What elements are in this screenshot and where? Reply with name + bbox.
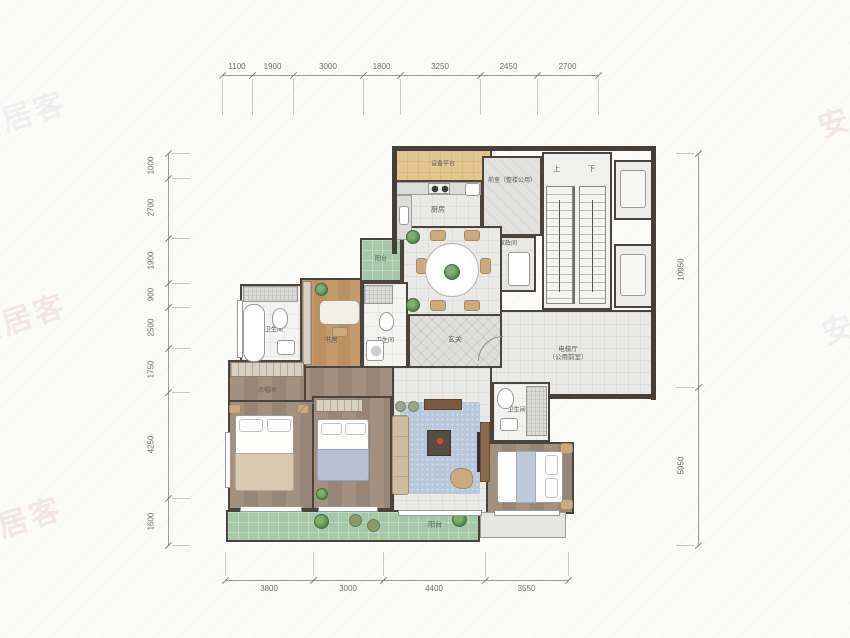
plant — [444, 264, 460, 280]
wall-segment — [394, 146, 656, 151]
dimension-label: 900 — [147, 278, 156, 312]
elevator-car — [620, 170, 646, 208]
dimension-extension — [172, 283, 190, 284]
pillow — [267, 419, 291, 432]
plant — [406, 230, 420, 244]
tv-console — [480, 422, 490, 482]
room-front-room: 前室（整楼公用） — [482, 156, 542, 236]
stair-arrow — [592, 200, 593, 292]
dimension-extension — [172, 153, 190, 154]
dimension-extension — [252, 79, 253, 115]
dimension-extension — [172, 545, 190, 546]
stair-down-label: 下 — [588, 166, 595, 175]
wardrobe-hatch — [315, 399, 363, 412]
dimension-label: 1900 — [256, 62, 290, 71]
elevator-car — [620, 254, 646, 296]
bed-blanket — [235, 453, 294, 491]
plant — [314, 514, 329, 529]
dimension-label: 1900 — [147, 243, 156, 277]
elevator-hall-line2: （公用前室） — [549, 354, 588, 361]
wall-segment — [548, 394, 654, 399]
dimension-label: 1100 — [220, 62, 254, 71]
dimension-label: 3800 — [252, 584, 286, 593]
bathroom-sink — [500, 418, 518, 431]
room-elevator-hall-label: 电梯厅 （公用前室） — [549, 346, 588, 362]
room-equipment-platform: 设备平台 — [394, 148, 492, 182]
dining-chair — [480, 258, 491, 274]
pillow — [545, 478, 558, 498]
dimension-label: 5950 — [677, 449, 686, 483]
stair-up-label: 上 — [553, 166, 560, 175]
window — [494, 510, 560, 516]
utility-sink — [508, 252, 530, 286]
dimension-label: 2500 — [147, 310, 156, 344]
dimension-label: 1750 — [147, 353, 156, 387]
dimension-label: 4400 — [417, 584, 451, 593]
dining-chair — [464, 230, 480, 241]
dimension-extension — [225, 552, 226, 576]
dimension-extension — [480, 79, 481, 115]
stair-divider — [573, 186, 575, 304]
sideboard — [424, 399, 462, 410]
dimension-label: 1000 — [147, 148, 156, 182]
window — [237, 300, 243, 358]
room-equipment-platform-label: 设备平台 — [431, 161, 455, 169]
room-balcony-label: 阳台 — [428, 522, 442, 531]
wall-segment — [651, 146, 656, 400]
watermark: 安居客 — [816, 281, 850, 353]
room-bath-3-label: 卫生间 — [508, 407, 526, 415]
toilet — [497, 388, 514, 409]
dimension-extension — [400, 79, 401, 115]
elevator-hall-line1: 电梯厅 — [558, 346, 578, 353]
pillow — [345, 423, 366, 435]
bed-blanket — [516, 451, 536, 503]
window — [318, 506, 378, 512]
dimension-extension — [568, 552, 569, 576]
dining-chair — [464, 300, 480, 311]
watermark: 安居客 — [0, 281, 71, 353]
dimension-label: 2700 — [147, 191, 156, 225]
dimension-line — [222, 75, 598, 76]
dimension-extension — [172, 392, 190, 393]
dimension-extension — [172, 238, 190, 239]
wardrobe-hatch — [230, 362, 304, 377]
dimension-extension — [383, 552, 384, 576]
plant — [316, 488, 328, 500]
washer — [366, 340, 384, 361]
dimension-label: 10050 — [677, 253, 686, 287]
watermark: 安居客 — [812, 74, 850, 146]
desk — [319, 300, 360, 325]
dimension-extension — [222, 79, 223, 115]
shower-floor — [243, 286, 298, 302]
pillow — [545, 455, 558, 475]
dimension-extension — [313, 552, 314, 576]
dimension-extension — [598, 79, 599, 115]
floorplan-page: 安居客 安居客 安居客 安居客 安居客 设备平台 厨房 前室（整楼公用） 家政间… — [0, 0, 850, 638]
room-front-room-label: 前室（整楼公用） — [488, 178, 536, 186]
shower-floor — [364, 285, 393, 304]
dimension-label: 4250 — [147, 428, 156, 462]
window — [398, 510, 482, 516]
pillow — [239, 419, 263, 432]
room-study-label: 书房 — [324, 337, 338, 346]
dimension-extension — [172, 178, 190, 179]
bathtub — [243, 304, 265, 362]
stool — [395, 401, 406, 412]
dimension-extension — [172, 348, 190, 349]
dimension-label: 1600 — [147, 504, 156, 538]
dimension-label: 3250 — [423, 62, 457, 71]
armchair — [450, 468, 473, 489]
dimension-extension — [363, 79, 364, 115]
shower-floor — [526, 386, 547, 436]
room-foyer-label: 玄关 — [448, 337, 462, 346]
stair-arrow — [559, 200, 560, 292]
dimension-label: 3000 — [311, 62, 345, 71]
room-cloakroom-label: 衣帽间 — [258, 388, 276, 396]
dimension-label: 2700 — [551, 62, 585, 71]
sofa — [392, 415, 409, 495]
toilet — [272, 308, 288, 329]
room-kitchen-label: 厨房 — [431, 206, 445, 215]
dimension-extension — [676, 153, 694, 154]
dimension-extension — [293, 79, 294, 115]
plant — [315, 283, 328, 296]
dimension-label: 3000 — [331, 584, 365, 593]
dining-chair — [430, 300, 446, 311]
window — [240, 506, 302, 512]
coffee-table — [427, 430, 451, 456]
watermark: 安居客 — [0, 78, 71, 150]
fridge — [465, 183, 480, 196]
stool — [367, 519, 380, 532]
dimension-label: 1800 — [365, 62, 399, 71]
dimension-label: 2450 — [492, 62, 526, 71]
desk-chair — [332, 327, 348, 337]
dimension-line — [698, 153, 699, 545]
stool — [349, 514, 362, 527]
watermark: 安居客 — [0, 484, 67, 556]
dimension-extension — [172, 498, 190, 499]
bed-blanket — [317, 449, 369, 481]
wall-segment — [392, 146, 397, 254]
bathroom-sink — [277, 340, 295, 355]
toilet — [379, 312, 394, 331]
dimension-line — [225, 580, 568, 581]
window — [225, 432, 231, 488]
dining-chair — [430, 230, 446, 241]
dimension-label: 3550 — [510, 584, 544, 593]
dimension-extension — [172, 307, 190, 308]
pillow — [321, 423, 342, 435]
stool — [408, 401, 419, 412]
kitchen-sink — [399, 206, 409, 225]
room-small-balcony-label: 阳台 — [375, 256, 387, 264]
nightstand — [229, 404, 241, 414]
cooktop — [428, 183, 450, 194]
tv — [477, 432, 480, 472]
dimension-extension — [485, 552, 486, 576]
dimension-extension — [537, 79, 538, 115]
dimension-extension — [676, 545, 694, 546]
plant — [406, 298, 420, 312]
dimension-extension — [676, 387, 694, 388]
bookshelf — [302, 281, 312, 365]
